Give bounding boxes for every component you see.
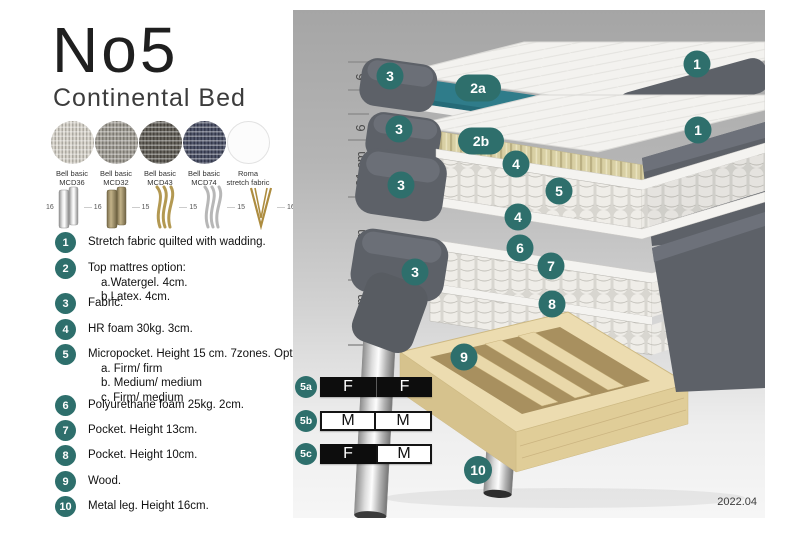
divider — [132, 207, 140, 208]
firmness-option-badge: 5a — [295, 376, 317, 398]
callout-badge: 3 — [402, 259, 429, 286]
product-title: No5 — [52, 18, 178, 82]
callout-badge: 3 — [377, 63, 404, 90]
list-item: 7 Pocket. Height 13cm. — [55, 420, 197, 441]
leg-height: 16 — [94, 204, 102, 211]
callout-badge: 1 — [684, 51, 711, 78]
firmness-row: 5c F M — [295, 443, 432, 465]
item-number-badge: 4 — [55, 319, 76, 340]
lower-fabric-corner — [347, 226, 450, 358]
item-main-text: Fabric. — [88, 297, 123, 311]
callout-label: 3 — [386, 68, 394, 84]
item-text: HR foam 30kg. 3cm. — [88, 319, 193, 340]
item-text: Polyurethane foam 25kg. 2cm. — [88, 395, 244, 416]
fabric-swatches: Bell basic MCD36 Bell basic MCD32 Bell b… — [50, 121, 270, 188]
divider — [277, 207, 285, 208]
callout-badge: 2b — [458, 128, 504, 155]
item-main-text: Polyurethane foam 25kg. 2cm. — [88, 399, 244, 413]
curved-gold-leg-icon — [151, 184, 177, 230]
firmness-bar: F M — [320, 444, 432, 464]
item-main-text: Pocket. Height 10cm. — [88, 449, 197, 463]
item-main-text: Micropocket. Height 15 cm. 7zones. Optio… — [88, 348, 311, 362]
leg-option: 15 — [189, 184, 225, 230]
fabric-swatch: Roma stretch fabric — [226, 121, 270, 188]
list-item: 4 HR foam 30kg. 3cm. — [55, 319, 193, 340]
callout-badge: 3 — [386, 116, 413, 143]
fabric-name: Bell basic — [138, 169, 182, 178]
callout-badge: 10 — [464, 456, 492, 484]
firmness-cell: M — [376, 444, 432, 464]
callout-label: 1 — [694, 122, 702, 138]
leg-options: 16 16 15 15 — [46, 182, 323, 232]
firmness-row: 5a F F — [295, 376, 432, 398]
item-number-badge: 2 — [55, 258, 76, 279]
callout-badge: 3 — [388, 172, 415, 199]
diagram-panel: 6 6 21 cm 27 cm 16 cm — [293, 10, 765, 518]
fabric-swatch: Bell basic MCD36 — [50, 121, 94, 188]
fabric-swatch-circle — [51, 121, 94, 164]
firmness-bar: M M — [320, 411, 432, 431]
callout-label: 2b — [473, 133, 489, 149]
item-main-text: Pocket. Height 13cm. — [88, 424, 197, 438]
item-text: Wood. — [88, 471, 121, 492]
fabric-swatch: Bell basic MCD32 — [94, 121, 138, 188]
item-number-badge: 10 — [55, 496, 76, 517]
divider — [227, 207, 235, 208]
firmness-cell: F — [376, 377, 432, 397]
item-sub-text: b. Medium/ medium — [101, 377, 311, 391]
callout-badge: 4 — [505, 204, 532, 231]
dimension-label: 6 — [353, 124, 368, 131]
leg-option: 15 — [237, 184, 275, 230]
divider — [179, 207, 187, 208]
item-text: Pocket. Height 13cm. — [88, 420, 197, 441]
item-main-text: Top mattres option: — [88, 262, 188, 276]
hairpin-gold-leg-icon — [247, 184, 275, 230]
leg-height: 15 — [237, 204, 245, 211]
firmness-row: 5b M M — [295, 410, 432, 432]
product-subtitle: Continental Bed — [53, 84, 246, 113]
firmness-option-badge: 5c — [295, 443, 317, 465]
curved-silver-leg-icon — [199, 184, 225, 230]
callout-label: 8 — [548, 296, 556, 312]
callout-label: 5 — [555, 183, 563, 199]
leg-height: 16 — [46, 204, 54, 211]
callout-badge: 4 — [503, 151, 530, 178]
firmness-cell: F — [320, 444, 376, 464]
fabric-swatch: Bell basic MCD43 — [138, 121, 182, 188]
item-main-text: HR foam 30kg. 3cm. — [88, 323, 193, 337]
firmness-cell: F — [320, 377, 376, 397]
fabric-name: Bell basic — [50, 169, 94, 178]
cylinder-silver-leg-icon — [56, 184, 82, 230]
fabric-swatch-circle — [95, 121, 138, 164]
list-item: 3 Fabric. — [55, 293, 123, 314]
leg-option: 16 — [94, 184, 130, 230]
item-number-badge: 7 — [55, 420, 76, 441]
cylinder-bronze-leg-icon — [104, 184, 130, 230]
item-text: Stretch fabric quilted with wadding. — [88, 232, 266, 253]
callout-badge: 5 — [546, 178, 573, 205]
callout-badge: 8 — [539, 291, 566, 318]
callout-label: 4 — [512, 156, 520, 172]
leg-option: 15 — [142, 184, 178, 230]
item-main-text: Wood. — [88, 475, 121, 489]
callout-badge: 9 — [451, 344, 478, 371]
firmness-bar: F F — [320, 377, 432, 397]
callout-badge: 2a — [455, 75, 501, 102]
item-number-badge: 3 — [55, 293, 76, 314]
leg-height: 15 — [189, 204, 197, 211]
fabric-name: Roma — [226, 169, 270, 178]
item-main-text: Stretch fabric quilted with wadding. — [88, 236, 266, 250]
leg-height: 15 — [142, 204, 150, 211]
item-number-badge: 1 — [55, 232, 76, 253]
divider — [84, 207, 92, 208]
item-main-text: Metal leg. Height 16cm. — [88, 500, 209, 514]
callout-label: 4 — [514, 209, 522, 225]
callout-label: 2a — [470, 80, 486, 96]
item-number-badge: 5 — [55, 344, 76, 365]
list-item: 8 Pocket. Height 10cm. — [55, 445, 197, 466]
leg-option: 16 — [46, 184, 82, 230]
list-item: 6 Polyurethane foam 25kg. 2cm. — [55, 395, 244, 416]
fabric-swatch-circle — [183, 121, 226, 164]
callout-label: 3 — [411, 264, 419, 280]
callout-label: 3 — [397, 177, 405, 193]
callout-label: 9 — [460, 349, 468, 365]
callout-badge: 7 — [538, 253, 565, 280]
fabric-name: Bell basic — [94, 169, 138, 178]
list-item: 1 Stretch fabric quilted with wadding. — [55, 232, 266, 253]
fabric-swatch-circle — [139, 121, 182, 164]
list-item: 10 Metal leg. Height 16cm. — [55, 496, 209, 517]
item-text: Metal leg. Height 16cm. — [88, 496, 209, 517]
version-label: 2022.04 — [717, 496, 757, 508]
callout-label: 7 — [547, 258, 555, 274]
firmness-option-badge: 5b — [295, 410, 317, 432]
bed-exploded-diagram: 6 6 21 cm 27 cm 16 cm — [293, 10, 765, 518]
callout-badge: 1 — [685, 117, 712, 144]
item-text: Pocket. Height 10cm. — [88, 445, 197, 466]
fabric-name: Bell basic — [182, 169, 226, 178]
item-number-badge: 6 — [55, 395, 76, 416]
firmness-cell: M — [320, 411, 376, 431]
callout-badge: 6 — [507, 235, 534, 262]
callout-label: 3 — [395, 121, 403, 137]
item-number-badge: 8 — [55, 445, 76, 466]
item-sub-text: a. Firm/ firm — [101, 363, 311, 377]
item-number-badge: 9 — [55, 471, 76, 492]
callout-label: 6 — [516, 240, 524, 256]
item-text: Fabric. — [88, 293, 123, 314]
list-item: 9 Wood. — [55, 471, 121, 492]
ground-shadow — [385, 488, 745, 508]
firmness-cell: M — [376, 411, 432, 431]
callout-label: 1 — [693, 56, 701, 72]
item-sub-text: a.Watergel. 4cm. — [101, 277, 188, 291]
callout-label: 10 — [470, 462, 486, 478]
fabric-swatch-circle — [227, 121, 270, 164]
page: No5 Continental Bed Bell basic MCD36 Bel… — [0, 0, 800, 533]
fabric-swatch: Bell basic MCD74 — [182, 121, 226, 188]
